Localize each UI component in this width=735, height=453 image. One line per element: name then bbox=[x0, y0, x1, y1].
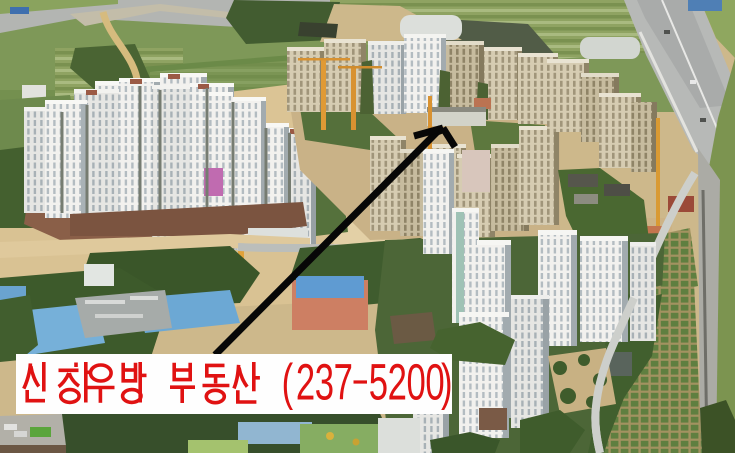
svg-text:5200: 5200 bbox=[369, 355, 445, 411]
svg-text:237: 237 bbox=[296, 355, 353, 411]
svg-text:(: ( bbox=[282, 355, 294, 411]
svg-text:): ) bbox=[441, 355, 452, 411]
